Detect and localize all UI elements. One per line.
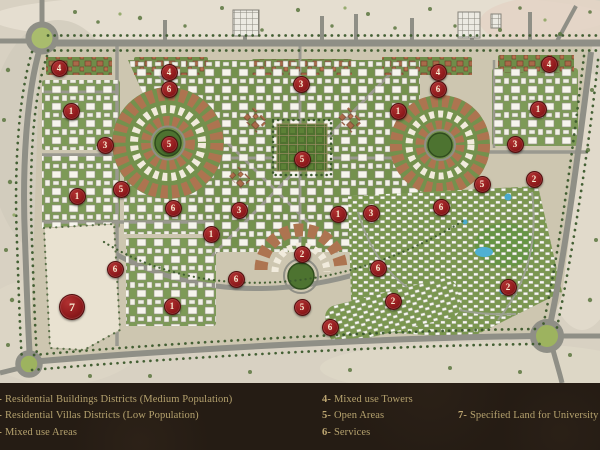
- map-marker-3: 3: [507, 136, 524, 153]
- legend-bar: 1-Residential Buildings Districts (Mediu…: [0, 383, 600, 450]
- map-marker-6: 6: [322, 319, 339, 336]
- map-marker-6: 6: [161, 81, 178, 98]
- legend-item-5-label: Open Areas: [334, 410, 384, 421]
- map-marker-1: 1: [203, 226, 220, 243]
- legend-item-4-number: 4-: [322, 394, 331, 405]
- map-marker-4: 4: [161, 64, 178, 81]
- legend-item-2-number: 2-: [0, 410, 2, 421]
- map-marker-6: 6: [433, 199, 450, 216]
- map-marker-6: 6: [107, 261, 124, 278]
- map-marker-2: 2: [385, 293, 402, 310]
- masterplan-screenshot: 4131567465631613525613621466524132 1-Res…: [0, 0, 600, 450]
- map-marker-5: 5: [161, 136, 178, 153]
- map-marker-5: 5: [113, 181, 130, 198]
- legend-item-3: 3-Mixed use Areas: [0, 427, 77, 439]
- map-marker-4: 4: [541, 56, 558, 73]
- map-marker-4: 4: [430, 64, 447, 81]
- map-marker-1: 1: [164, 298, 181, 315]
- map-marker-1: 1: [330, 206, 347, 223]
- map-marker-1: 1: [530, 101, 547, 118]
- map-marker-1: 1: [63, 103, 80, 120]
- map-marker-6: 6: [430, 81, 447, 98]
- legend-item-2-label: Residential Villas Districts (Low Popula…: [5, 410, 199, 421]
- legend-item-2: 2-Residential Villas Districts (Low Popu…: [0, 410, 199, 422]
- map-marker-2: 2: [526, 171, 543, 188]
- map-marker-3: 3: [231, 202, 248, 219]
- map-marker-2: 2: [500, 279, 517, 296]
- masterplan-map: 4131567465631613525613621466524132: [0, 0, 600, 383]
- legend-item-7-number: 7-: [458, 410, 467, 421]
- legend-item-5: 5-Open Areas: [322, 410, 384, 422]
- legend-item-5-number: 5-: [322, 410, 331, 421]
- legend-item-7: 7-Specified Land for University: [458, 410, 599, 422]
- map-marker-1: 1: [390, 103, 407, 120]
- legend-item-1: 1-Residential Buildings Districts (Mediu…: [0, 394, 232, 406]
- map-marker-5: 5: [294, 299, 311, 316]
- legend-item-4: 4-Mixed use Towers: [322, 394, 413, 406]
- map-marker-6: 6: [165, 200, 182, 217]
- legend-item-6: 6-Services: [322, 427, 370, 439]
- map-marker-6: 6: [370, 260, 387, 277]
- map-marker-2: 2: [294, 246, 311, 263]
- legend-item-7-label: Specified Land for University: [470, 410, 599, 421]
- legend-item-1-number: 1-: [0, 394, 2, 405]
- map-marker-1: 1: [69, 188, 86, 205]
- map-marker-3: 3: [363, 205, 380, 222]
- map-marker-7: 7: [59, 294, 85, 320]
- legend-item-4-label: Mixed use Towers: [334, 394, 413, 405]
- legend-item-1-label: Residential Buildings Districts (Medium …: [5, 394, 232, 405]
- map-marker-3: 3: [293, 76, 310, 93]
- map-marker-3: 3: [97, 137, 114, 154]
- map-marker-4: 4: [51, 60, 68, 77]
- legend-item-6-label: Services: [334, 427, 370, 438]
- map-marker-6: 6: [228, 271, 245, 288]
- map-marker-5: 5: [294, 151, 311, 168]
- marker-layer: 4131567465631613525613621466524132: [0, 0, 600, 383]
- map-marker-5: 5: [474, 176, 491, 193]
- legend-item-3-label: Mixed use Areas: [5, 427, 77, 438]
- legend-item-3-number: 3-: [0, 427, 2, 438]
- legend-item-6-number: 6-: [322, 427, 331, 438]
